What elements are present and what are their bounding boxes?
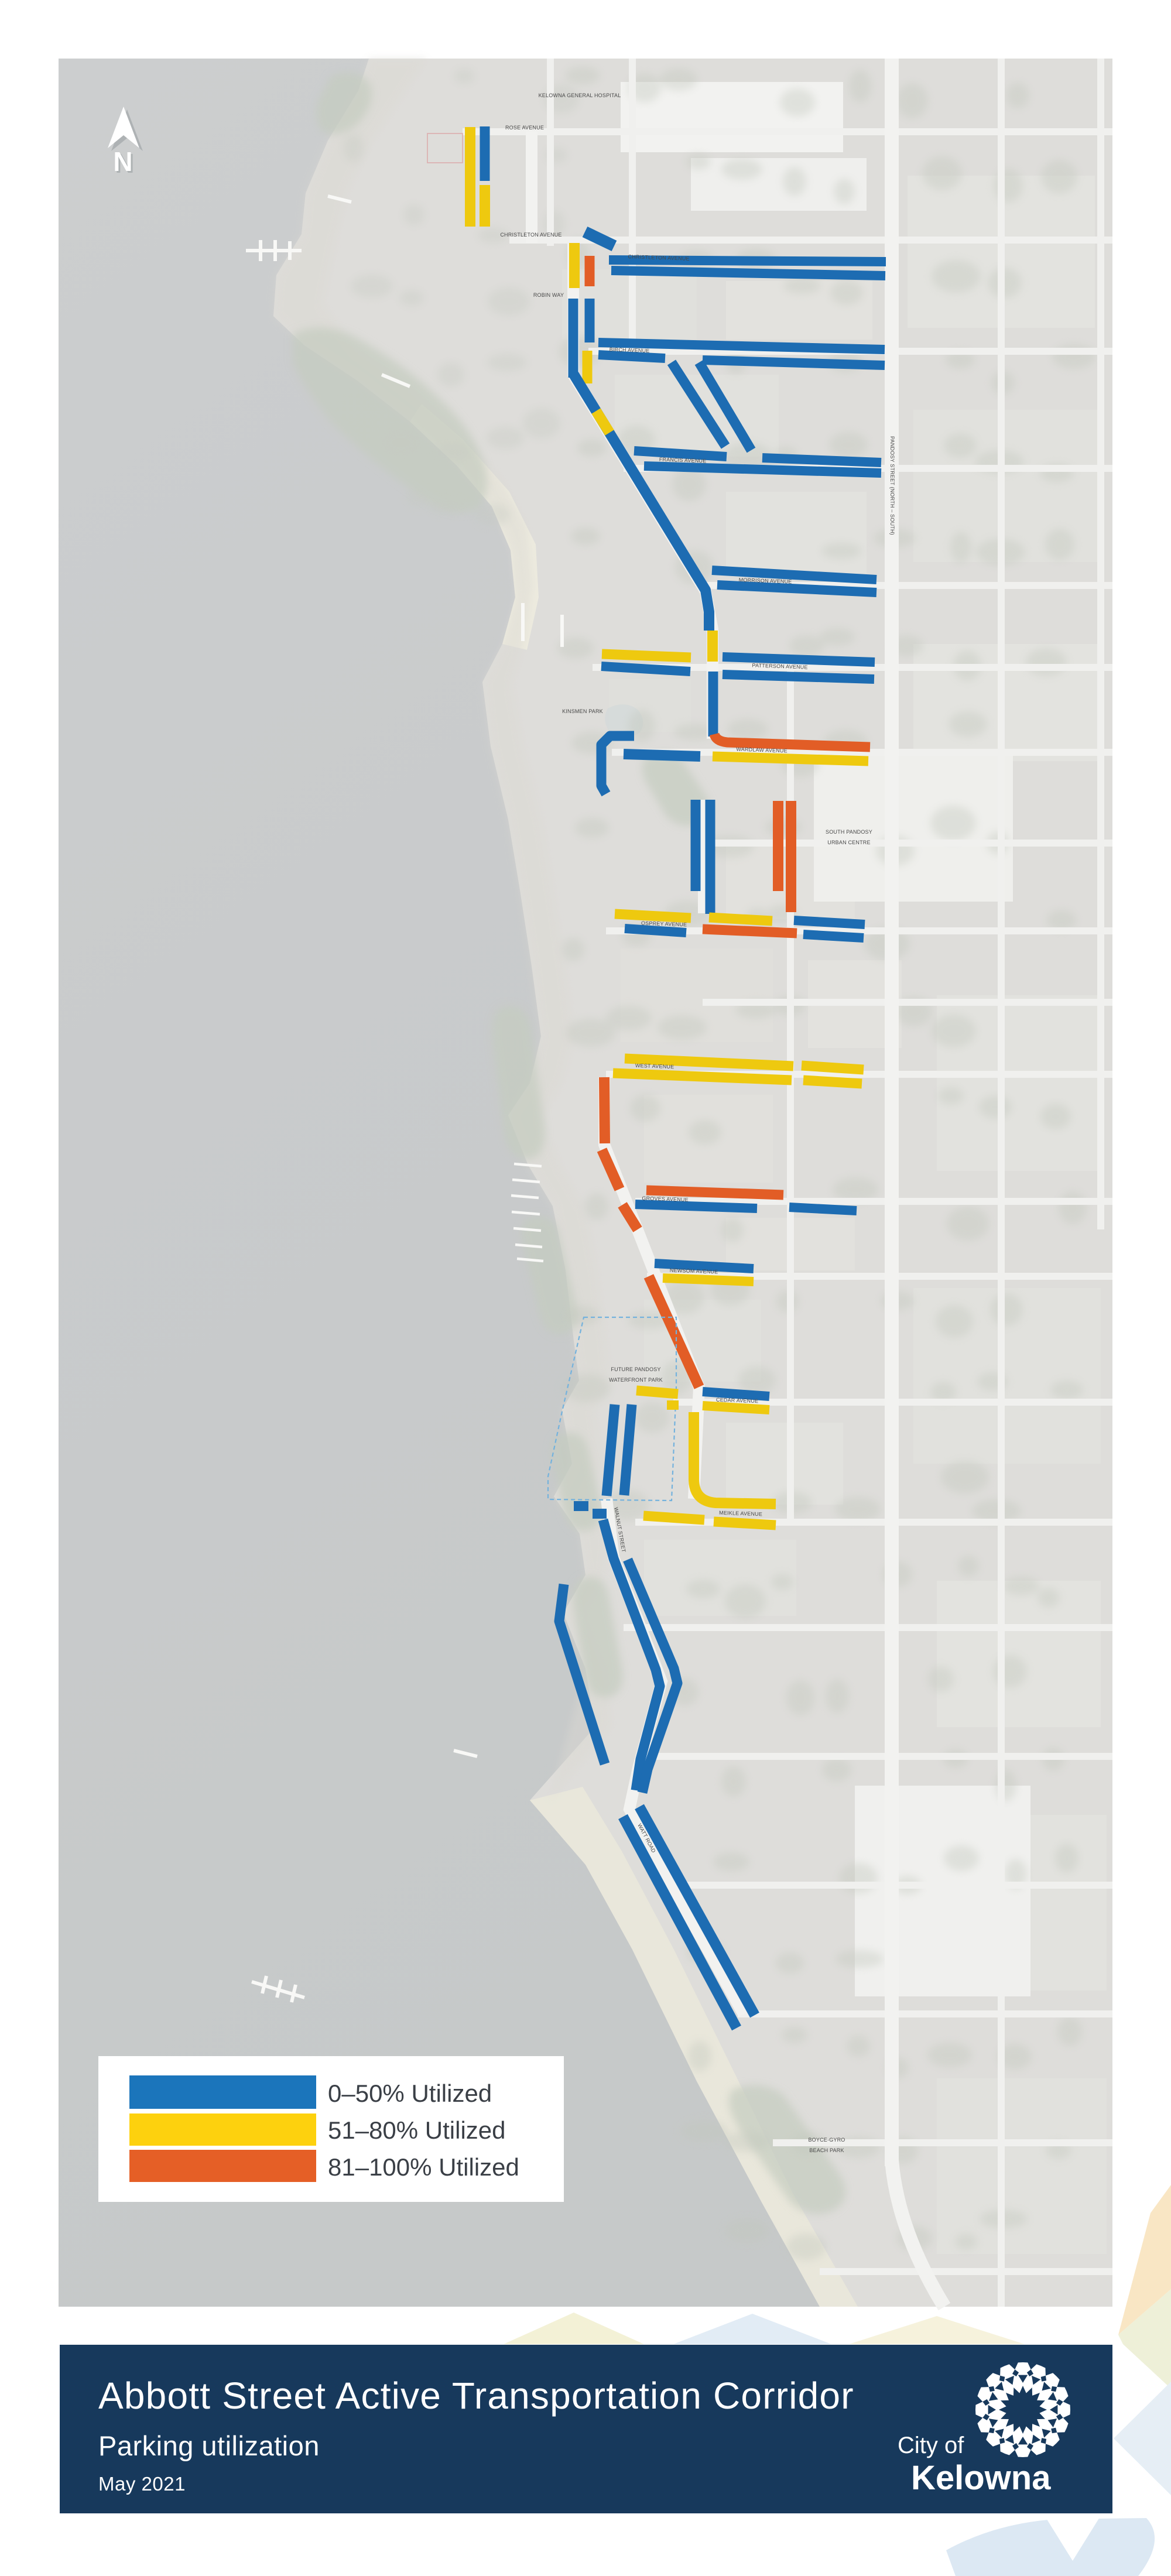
svg-text:Abbott Street Active Transport: Abbott Street Active Transportation Corr… xyxy=(98,2375,854,2417)
svg-text:51–80% Utilized: 51–80% Utilized xyxy=(328,2116,506,2144)
svg-text:ROSE AVENUE: ROSE AVENUE xyxy=(505,125,544,131)
svg-text:ROBIN WAY: ROBIN WAY xyxy=(533,292,564,298)
svg-text:KINSMEN PARK: KINSMEN PARK xyxy=(562,708,603,714)
svg-text:81–100% Utilized: 81–100% Utilized xyxy=(328,2153,519,2181)
svg-text:Kelowna: Kelowna xyxy=(911,2459,1051,2497)
svg-text:City of: City of xyxy=(898,2433,964,2458)
svg-text:PANDOSY STREET (NORTH – SOUTH): PANDOSY STREET (NORTH – SOUTH) xyxy=(889,436,895,535)
svg-text:KELOWNA GENERAL HOSPITAL: KELOWNA GENERAL HOSPITAL xyxy=(539,93,621,98)
svg-text:WATERFRONT PARK: WATERFRONT PARK xyxy=(609,1377,663,1383)
svg-text:FUTURE PANDOSY: FUTURE PANDOSY xyxy=(611,1366,660,1372)
svg-text:May 2021: May 2021 xyxy=(98,2473,186,2495)
svg-text:Parking utilization: Parking utilization xyxy=(98,2430,320,2461)
svg-text:SOUTH PANDOSY: SOUTH PANDOSY xyxy=(826,829,872,835)
svg-text:0–50% Utilized: 0–50% Utilized xyxy=(328,2080,492,2107)
svg-text:CHRISTLETON AVENUE: CHRISTLETON AVENUE xyxy=(500,232,561,238)
svg-text:N: N xyxy=(113,146,132,177)
svg-text:BEACH PARK: BEACH PARK xyxy=(809,2147,844,2153)
svg-text:BOYCE-GYRO: BOYCE-GYRO xyxy=(808,2137,845,2143)
svg-text:URBAN CENTRE: URBAN CENTRE xyxy=(827,840,870,845)
